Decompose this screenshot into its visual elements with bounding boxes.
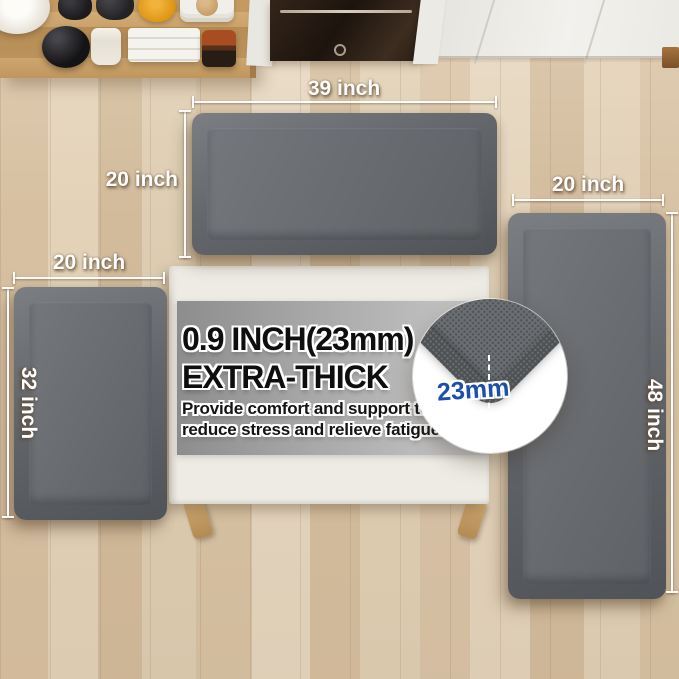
dimension-line-top-width — [192, 101, 497, 103]
dimension-tick — [179, 110, 191, 112]
black-teapot — [42, 26, 90, 68]
white-bowl — [0, 0, 50, 34]
dimension-label-right-height: 48 inch — [642, 360, 666, 470]
spice-jar — [202, 30, 236, 67]
dimension-tick — [495, 96, 497, 108]
dimension-tick — [192, 96, 194, 108]
wood-trim — [662, 47, 679, 68]
cabinet-seam — [474, 0, 497, 65]
white-jar — [91, 28, 121, 65]
mat-top — [192, 113, 497, 255]
dimension-label-right-width: 20 inch — [512, 173, 664, 197]
dimension-line-top-height — [184, 110, 186, 258]
mat-left-surface — [29, 302, 152, 505]
dimension-label-top-height: 20 inch — [88, 168, 178, 192]
dimension-tick — [179, 256, 191, 258]
dimension-line-right-width — [512, 199, 664, 201]
white-cabinets — [432, 0, 679, 58]
black-canister — [58, 0, 92, 20]
amber-jar — [138, 0, 176, 22]
cabinet-shadow — [428, 56, 679, 63]
dimension-label-left-height: 32 inch — [16, 348, 40, 458]
dimension-label-top-width: 39 inch — [244, 77, 444, 101]
mat-top-surface — [207, 128, 482, 240]
black-canister — [96, 0, 134, 20]
dimension-tick — [666, 212, 678, 214]
cabinet-seam — [584, 0, 607, 65]
kitchen-shelf — [0, 0, 256, 78]
folded-towels — [128, 28, 200, 62]
dimension-line-left-width — [13, 277, 165, 279]
thickness-label: 23mm — [436, 373, 541, 405]
oven-knob — [334, 44, 346, 56]
dimension-tick — [2, 516, 14, 518]
dimension-tick — [666, 591, 678, 593]
dimension-tick — [2, 287, 14, 289]
thickness-zoom-inset: 23mm — [413, 299, 567, 453]
dimension-line-right-height — [671, 212, 673, 593]
dimension-line-left-height — [7, 287, 9, 518]
product-image: 0.9 INCH(23mm) EXTRA-THICK Provide comfo… — [0, 0, 679, 679]
oven — [270, 0, 422, 61]
oven-handle — [280, 10, 412, 13]
dimension-label-left-width: 20 inch — [13, 251, 165, 275]
